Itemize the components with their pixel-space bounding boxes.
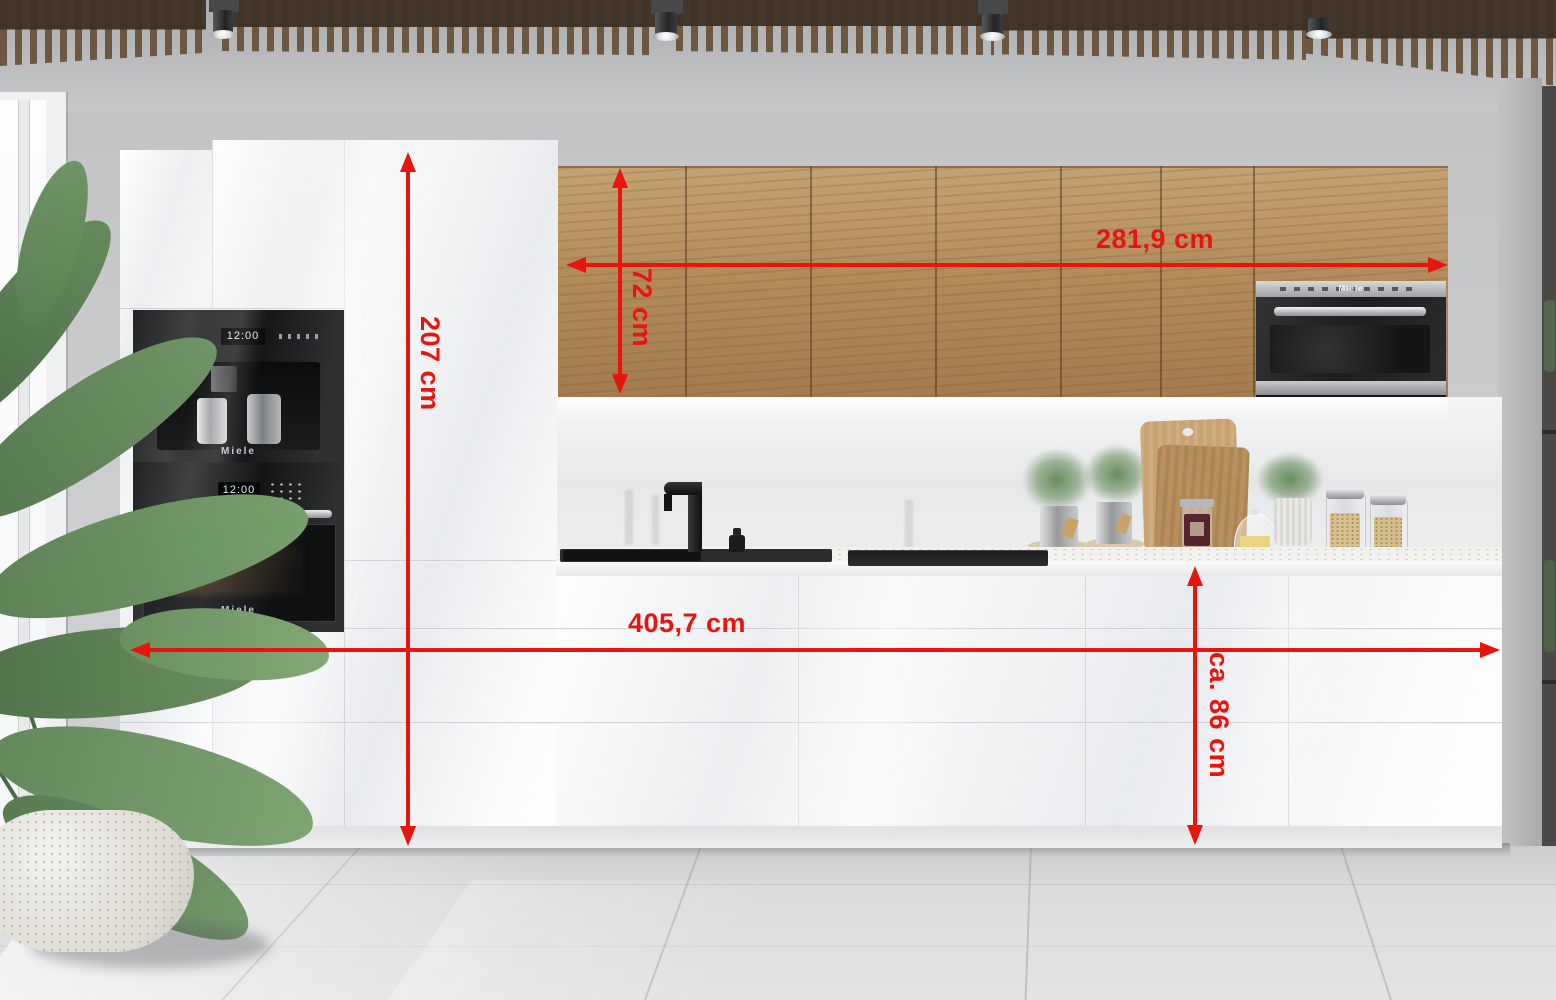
dimension-line-upper-width — [586, 263, 1428, 267]
dimension-line-upper-height — [618, 186, 622, 374]
dimension-label-upper-width: 281,9 cm — [1005, 224, 1305, 255]
dimension-arrow-down — [400, 826, 416, 846]
dimension-arrow-up — [400, 152, 416, 172]
dimension-arrow-left — [130, 642, 150, 658]
dimension-label-tall-height: 207 cm — [414, 316, 445, 411]
dimension-arrow-up — [612, 168, 628, 188]
dimension-arrow-left — [566, 257, 586, 273]
dimension-label-base-height: ca. 86 cm — [1203, 652, 1234, 778]
dimension-arrow-down — [612, 374, 628, 394]
dimension-line-base-height — [1193, 584, 1197, 827]
dimension-line-total-width — [148, 648, 1482, 652]
kitchen-photo: 12:00 Miele 12:00 Miele Miele — [0, 0, 1556, 1000]
dimension-label-total-width: 405,7 cm — [537, 608, 837, 639]
dimension-label-upper-height: 72 cm — [626, 268, 657, 347]
dimension-arrow-up — [1187, 566, 1203, 586]
dimension-arrow-right — [1480, 642, 1500, 658]
dimension-arrow-right — [1428, 257, 1448, 273]
dimension-arrow-down — [1187, 825, 1203, 845]
dimension-overlay: 281,9 cm 72 cm 207 cm 405,7 cm ca. 86 cm — [0, 0, 1556, 1000]
dimension-line-tall-height — [406, 170, 410, 828]
